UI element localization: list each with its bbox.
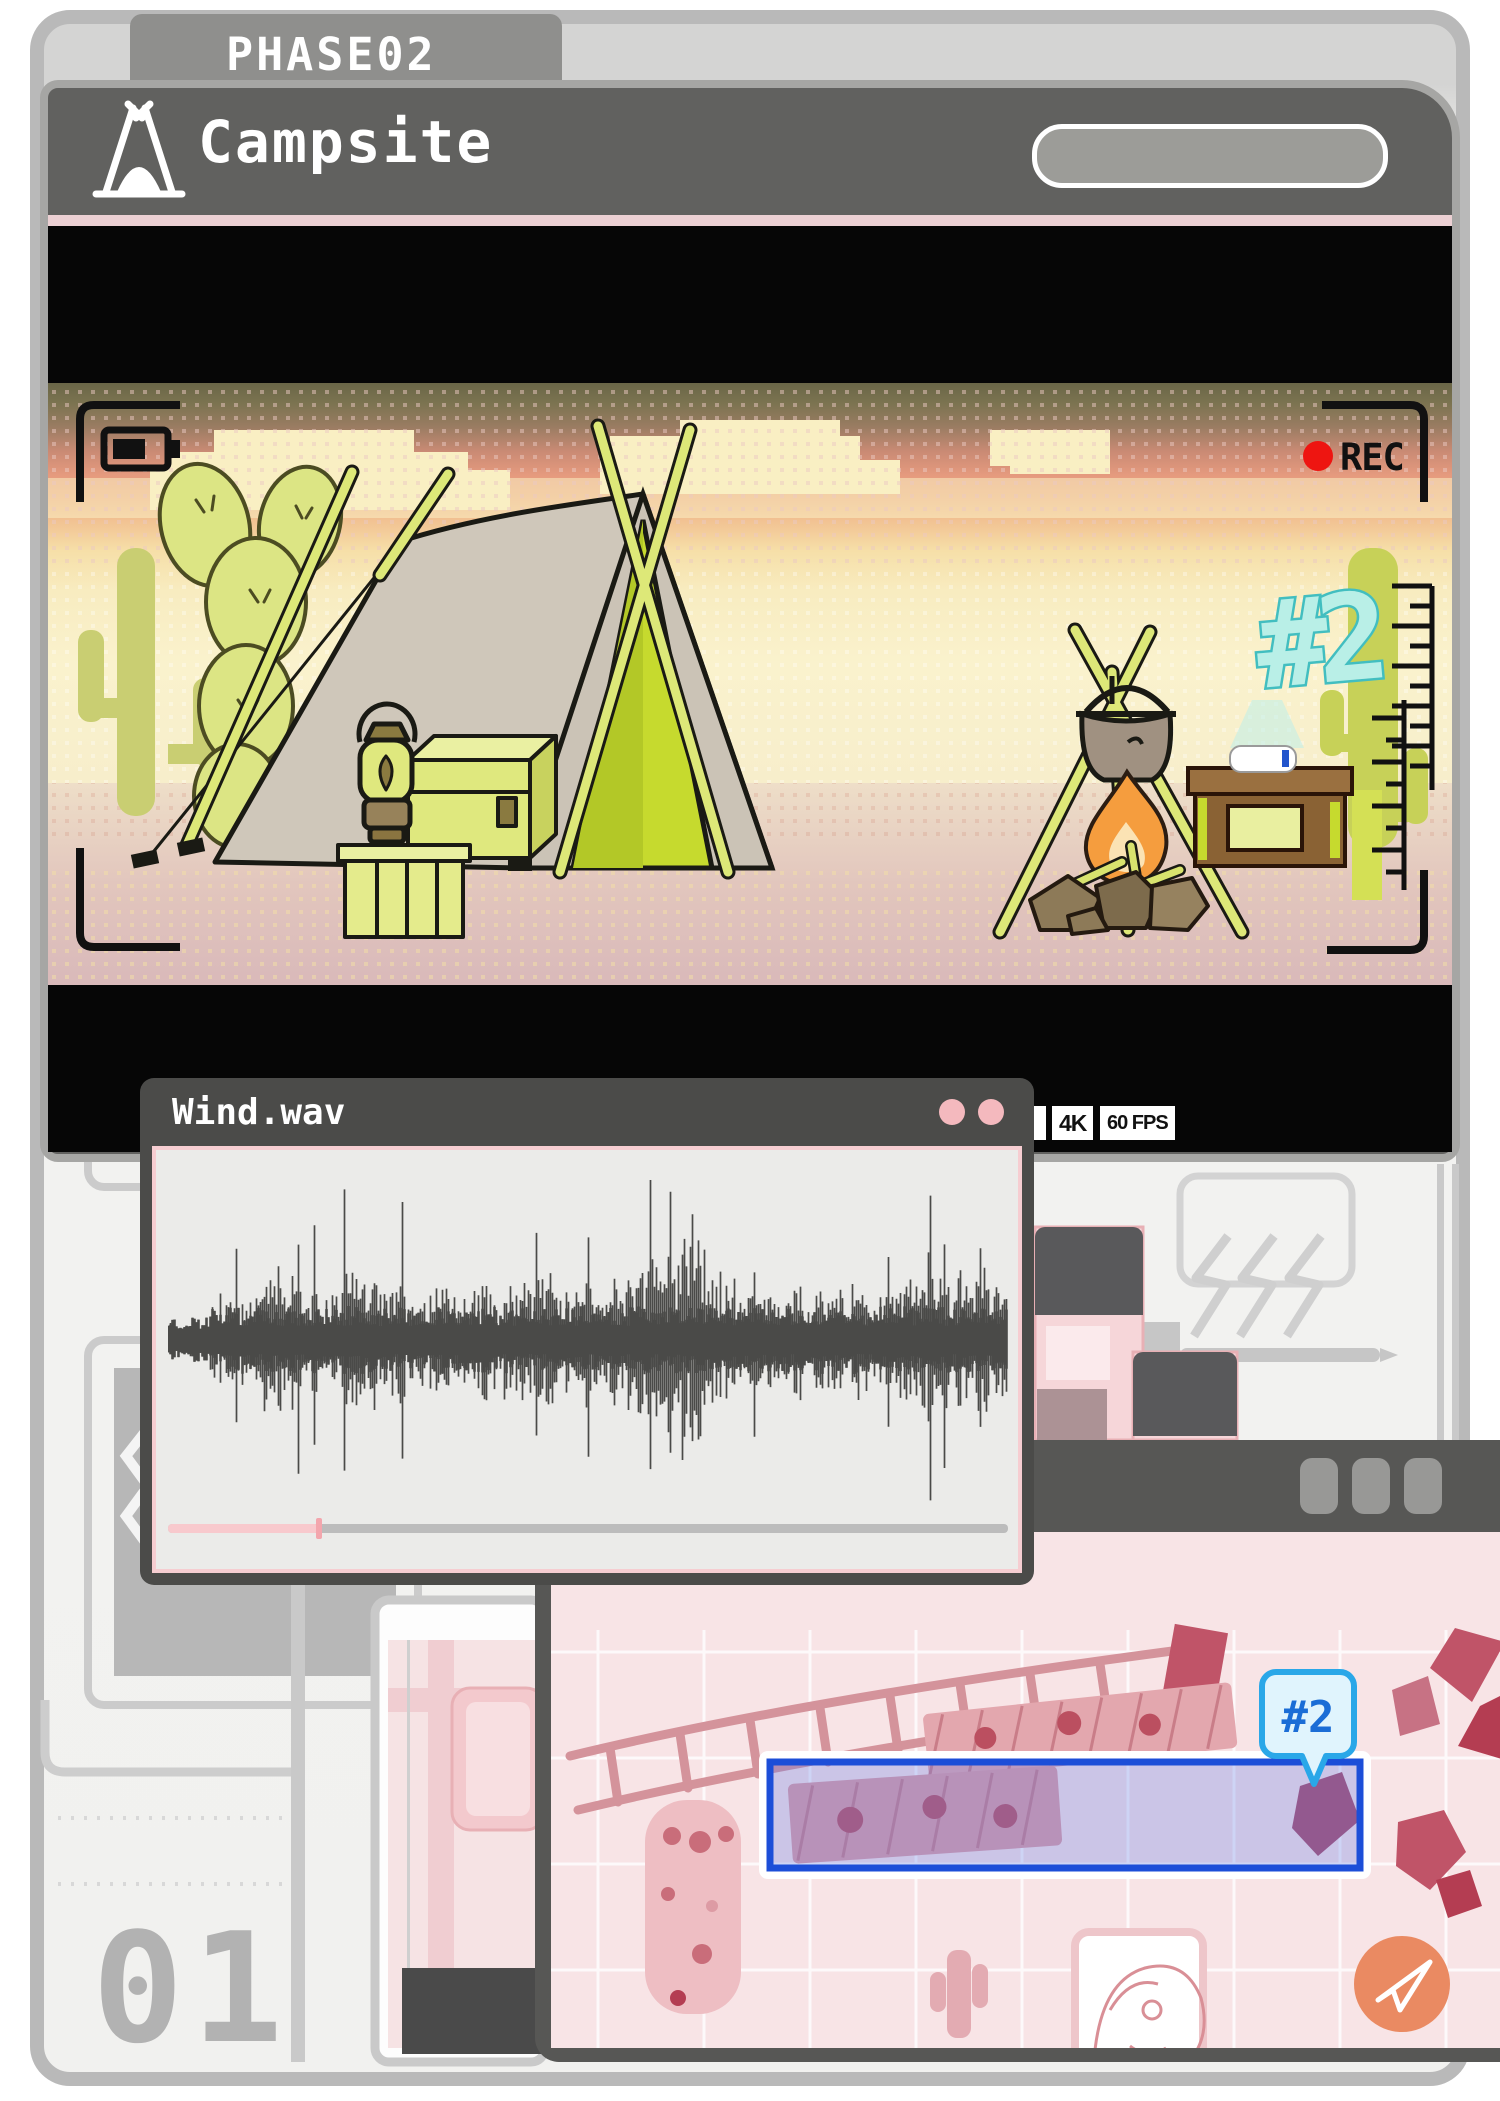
audio-progress-played [168,1524,319,1533]
window-button-icon[interactable] [1352,1458,1390,1514]
marker-bubble-label: #2 [1282,1692,1335,1743]
phase-tab-label: PHASE02 [226,28,437,81]
map-selection[interactable] [764,1756,1366,1874]
rec-label: REC [1340,436,1404,479]
faded-white-card [375,1600,545,2062]
send-button[interactable] [1354,1936,1450,2032]
tent-icon [84,96,194,206]
map-window-title-buttons [1300,1458,1442,1514]
scrollbar-line [1437,1164,1444,1442]
phase-tab[interactable]: PHASE02 [130,14,562,86]
window-dot-icon[interactable] [978,1099,1004,1125]
campsite-window-title: Campsite [198,108,493,176]
hologram-number: #2 [1251,567,1386,716]
zine-page: 01 PHASE02 Campsite [0,0,1500,2101]
panel-corner-line [45,1700,292,1772]
window-button-icon[interactable] [1300,1458,1338,1514]
page-number: 01 [92,1900,291,2077]
title-divider [48,215,1452,226]
scrollbar-line [1452,1164,1459,1442]
camera-viewfinder-scene: #2 REC [48,383,1452,985]
framerate-badge: 60 FPS [1100,1106,1175,1140]
title-bar-pill-button[interactable] [1032,124,1388,188]
audio-window-title: Wind.wav [172,1092,345,1133]
map-portrait-card [1075,1932,1204,2062]
resolution-badge: 4K [1052,1106,1093,1140]
window-dot-icon[interactable] [939,1099,965,1125]
waveform-display[interactable] [168,1180,1008,1510]
map-tower [645,1800,741,2014]
window-button-icon[interactable] [1404,1458,1442,1514]
rec-dot-icon [1303,441,1333,471]
audio-progress-handle[interactable] [316,1518,322,1539]
